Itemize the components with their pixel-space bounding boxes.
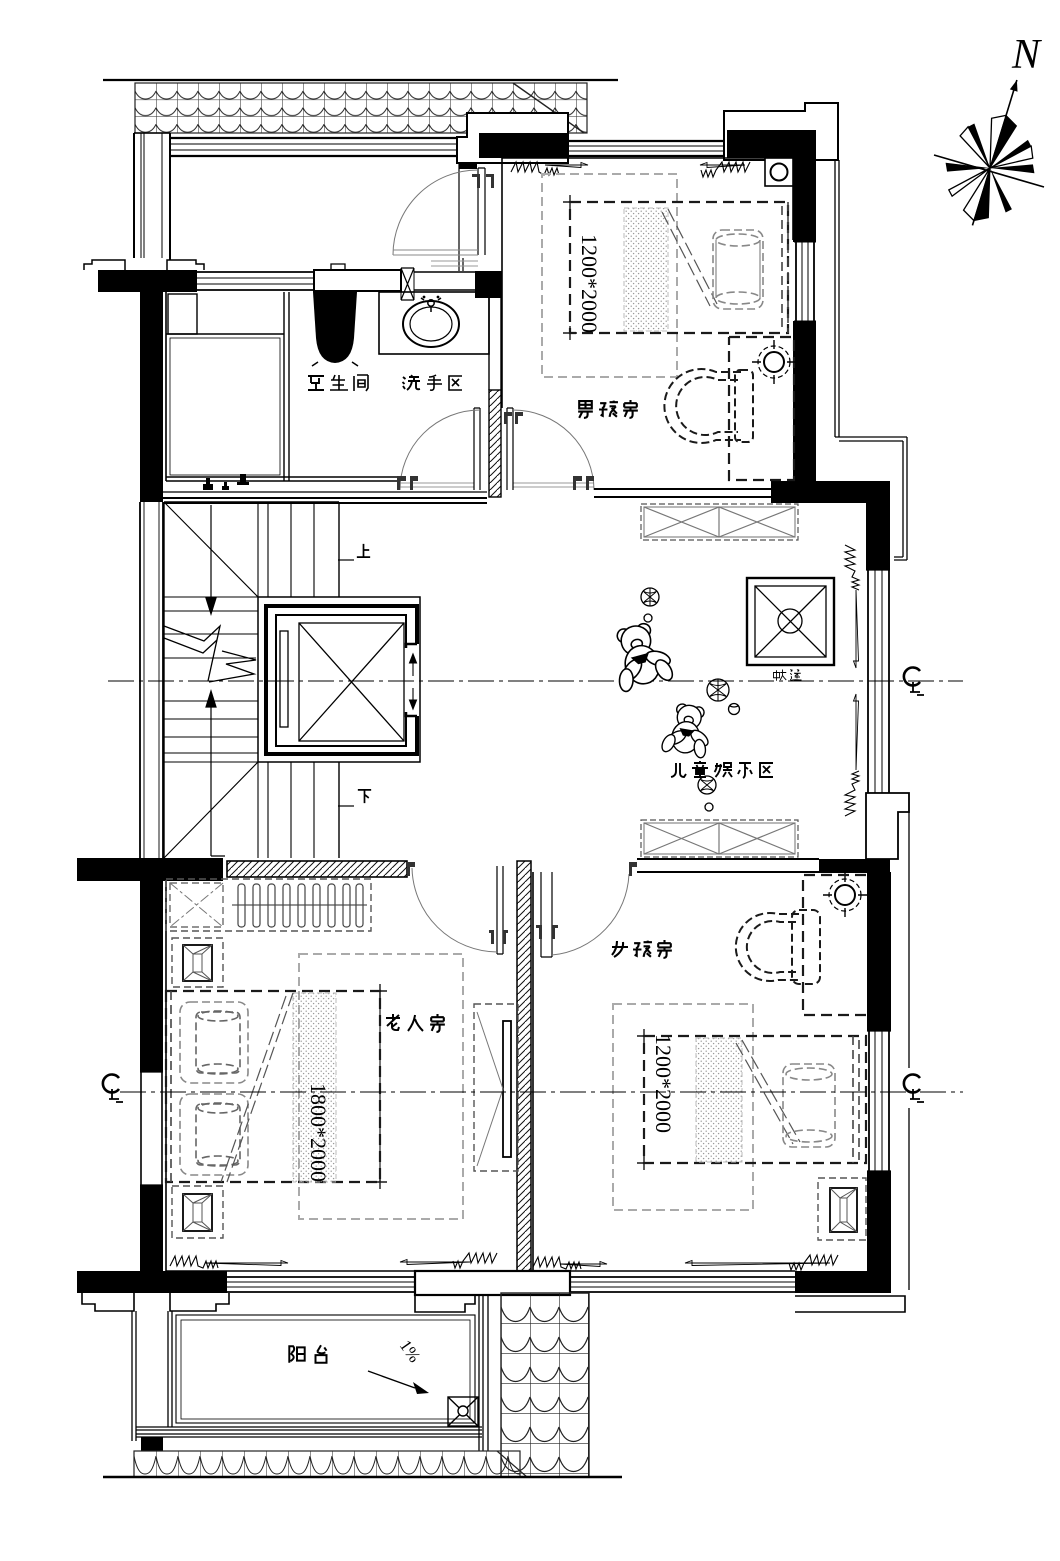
svg-text:N: N (1011, 32, 1042, 78)
svg-text:1200*2000: 1200*2000 (577, 234, 602, 333)
svg-text:1800*2000: 1800*2000 (306, 1083, 331, 1182)
svg-text:1200*2000: 1200*2000 (651, 1034, 676, 1133)
